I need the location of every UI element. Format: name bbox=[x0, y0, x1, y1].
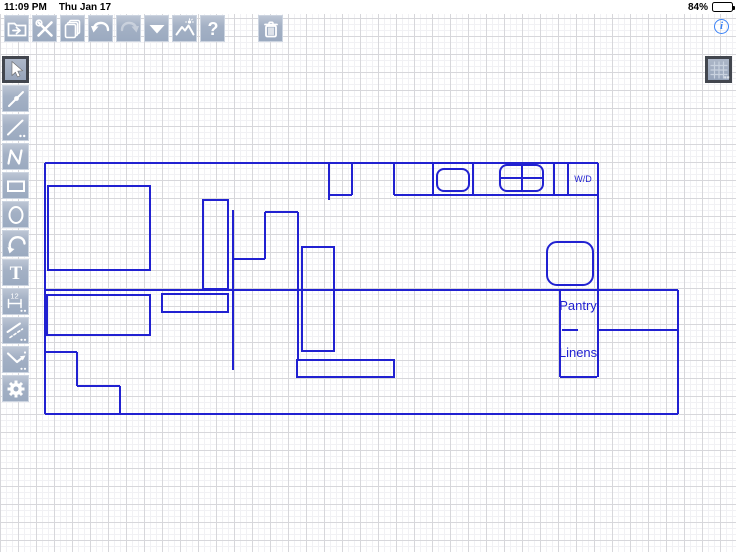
plan-rounded-rect[interactable] bbox=[437, 169, 469, 191]
arc-button[interactable] bbox=[2, 230, 29, 257]
clock-time: 11:09 PM bbox=[4, 2, 47, 13]
undo-button[interactable] bbox=[88, 15, 113, 42]
dimension-button[interactable]: 12 bbox=[2, 288, 29, 315]
parallel-lines-icon bbox=[4, 319, 28, 343]
dimension-icon: 12 bbox=[4, 290, 28, 314]
settings-icon bbox=[4, 377, 28, 401]
plan-rect[interactable] bbox=[203, 200, 228, 289]
trash-button[interactable] bbox=[258, 15, 283, 42]
line-node-button[interactable] bbox=[2, 85, 29, 112]
polyline-icon bbox=[4, 145, 28, 169]
plan-rect[interactable] bbox=[47, 295, 150, 335]
line-node-icon bbox=[4, 87, 28, 111]
help-icon: ? bbox=[201, 17, 225, 41]
angle-snap-button[interactable] bbox=[2, 346, 29, 373]
battery-icon bbox=[712, 2, 733, 12]
grid-icon bbox=[707, 58, 731, 82]
rectangle-icon bbox=[4, 174, 28, 198]
plan-rect[interactable] bbox=[297, 360, 394, 377]
ellipse-icon bbox=[4, 203, 28, 227]
plan-label[interactable]: Linens bbox=[559, 345, 598, 360]
photo-icon bbox=[173, 17, 197, 41]
file-export-icon bbox=[5, 17, 29, 41]
plan-label[interactable]: W/D bbox=[574, 174, 592, 184]
tools-button[interactable] bbox=[32, 15, 57, 42]
status-bar: 11:09 PM Thu Jan 17 84% bbox=[0, 0, 736, 14]
pages-button[interactable] bbox=[60, 15, 85, 42]
dropdown-icon bbox=[145, 17, 169, 41]
text-icon: T bbox=[4, 261, 28, 285]
text-button[interactable]: T bbox=[2, 259, 29, 286]
rectangle-button[interactable] bbox=[2, 172, 29, 199]
angle-snap-icon bbox=[4, 348, 28, 372]
plan-rounded-rect[interactable] bbox=[547, 242, 593, 285]
redo-icon bbox=[117, 17, 141, 41]
line-dashed-button[interactable] bbox=[2, 114, 29, 141]
line-dashed-icon bbox=[4, 116, 28, 140]
pages-icon bbox=[61, 17, 85, 41]
file-export-button[interactable] bbox=[4, 15, 29, 42]
settings-button[interactable] bbox=[2, 375, 29, 402]
left-toolbar: T12 bbox=[2, 56, 29, 402]
pointer-button[interactable] bbox=[2, 56, 29, 83]
tools-icon bbox=[33, 17, 57, 41]
plan-rect[interactable] bbox=[162, 294, 228, 312]
drawing-canvas[interactable]: W/DPantryLinens bbox=[0, 0, 736, 552]
help-button[interactable]: ? bbox=[200, 15, 225, 42]
ellipse-button[interactable] bbox=[2, 201, 29, 228]
grid-toggle-button[interactable] bbox=[705, 56, 732, 83]
redo-button[interactable] bbox=[116, 15, 141, 42]
battery-percent: 84% bbox=[688, 2, 708, 13]
dropdown-button[interactable] bbox=[144, 15, 169, 42]
parallel-lines-button[interactable] bbox=[2, 317, 29, 344]
plan-rect[interactable] bbox=[302, 247, 334, 351]
svg-text:T: T bbox=[9, 263, 22, 284]
arc-icon bbox=[4, 232, 28, 256]
svg-text:?: ? bbox=[207, 19, 218, 39]
photo-button[interactable] bbox=[172, 15, 197, 42]
svg-text:12: 12 bbox=[10, 291, 18, 300]
pointer-icon bbox=[4, 58, 28, 82]
trash-icon bbox=[259, 17, 283, 41]
undo-icon bbox=[89, 17, 113, 41]
polyline-button[interactable] bbox=[2, 143, 29, 170]
info-button[interactable]: i bbox=[714, 19, 729, 34]
plan-rect[interactable] bbox=[48, 186, 150, 270]
clock-date: Thu Jan 17 bbox=[59, 2, 111, 13]
top-toolbar: ? bbox=[4, 15, 283, 42]
plan-label[interactable]: Pantry bbox=[559, 298, 597, 313]
